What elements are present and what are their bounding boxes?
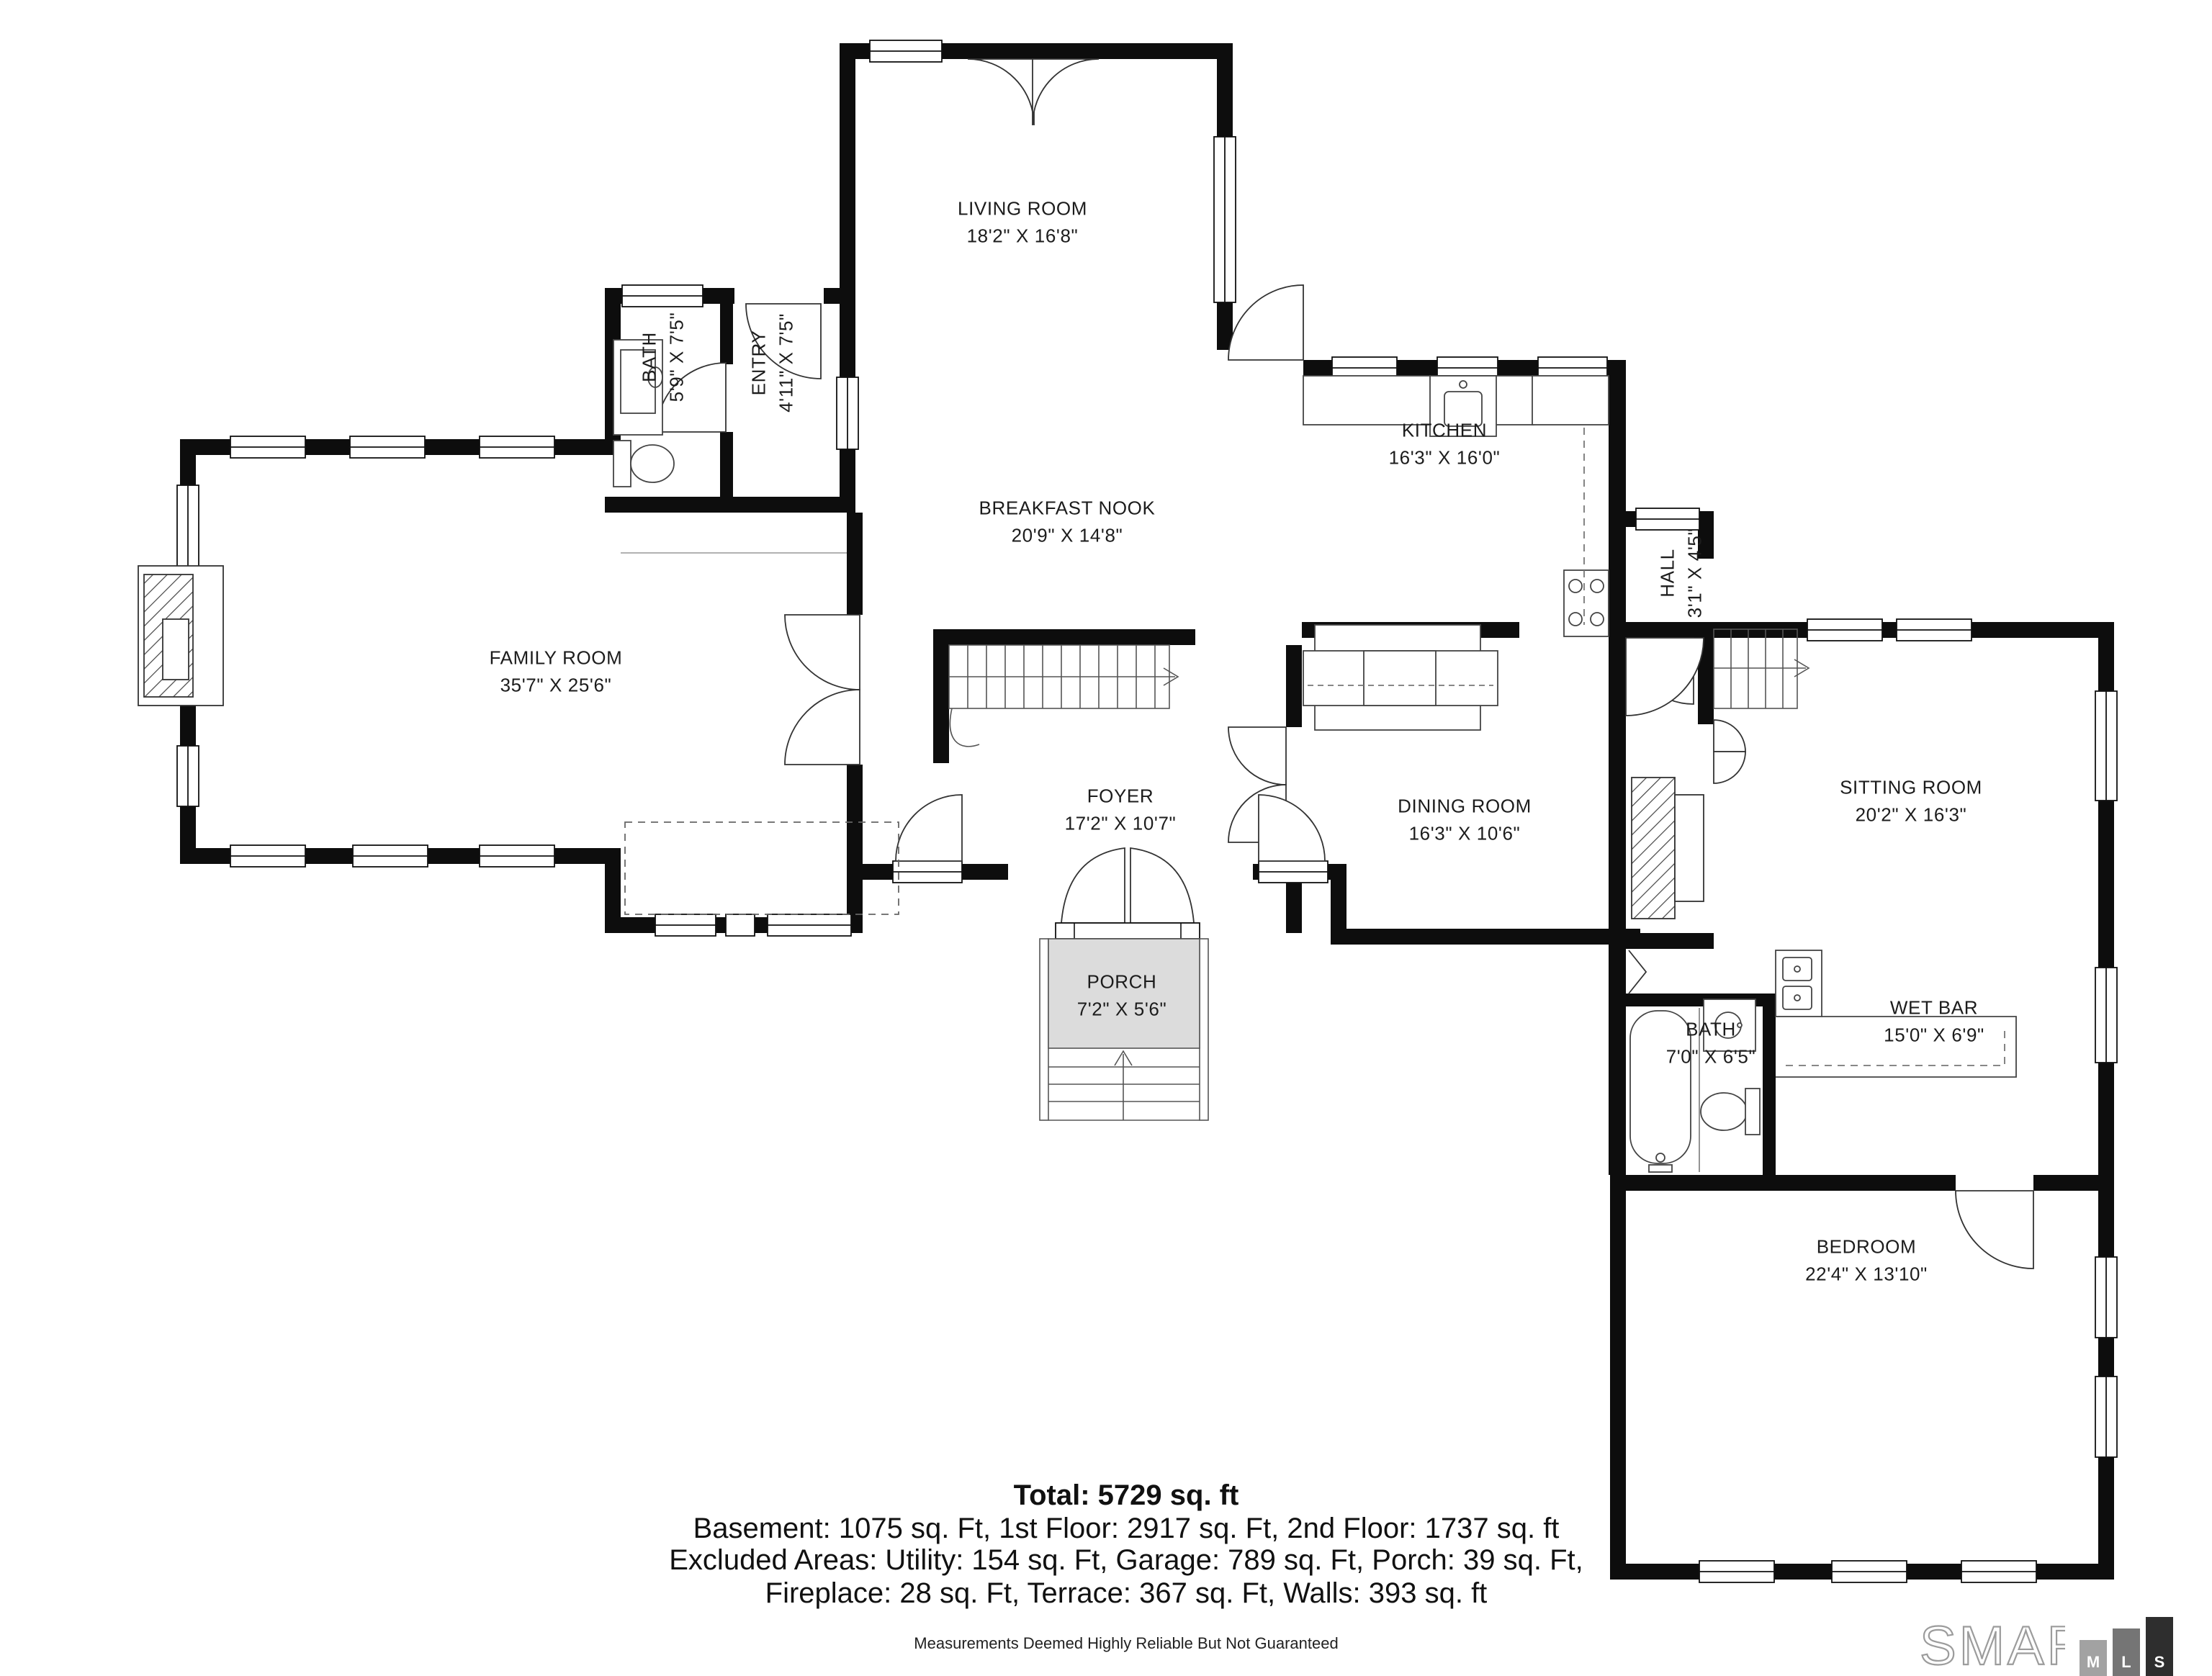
excluded-areas-2: Fireplace: 28 sq. Ft, Terrace: 367 sq. F…: [20, 1577, 2212, 1610]
room-name: BREAKFAST NOOK: [979, 495, 1156, 523]
porch-steps: [1048, 1051, 1200, 1120]
room-name: BATH: [1666, 1017, 1756, 1044]
room-dims: 7'2" X 5'6": [1077, 996, 1167, 1024]
room-name: ENTRY: [746, 313, 773, 413]
closet-door-bottom: [1714, 752, 1745, 783]
closet-door-top: [1714, 720, 1745, 752]
room-label-bath-2: BATH 7'0" X 6'5": [1666, 1017, 1756, 1071]
bath2-toilet-bowl: [1701, 1093, 1747, 1130]
room-name: DINING ROOM: [1398, 793, 1532, 821]
room-name: LIVING ROOM: [958, 196, 1087, 223]
room-name: WET BAR: [1884, 995, 1984, 1022]
room-dims: 16'3" X 16'0": [1389, 445, 1501, 472]
room-dims: 18'2" X 16'8": [958, 223, 1087, 251]
bath2-toilet-tank: [1745, 1089, 1760, 1135]
room-dims: 15'0" X 6'9": [1884, 1022, 1984, 1050]
room-name: KITCHEN: [1389, 418, 1501, 445]
room-dims: 17'2" X 10'7": [1065, 811, 1177, 838]
room-dims: 22'4" X 13'10": [1805, 1261, 1928, 1289]
room-label-hall: HALL 3'1" X 4'5": [1655, 528, 1709, 618]
bath1-toilet-bowl: [631, 445, 674, 482]
livingroom-french-door-left: [968, 59, 1034, 125]
main-staircase: [949, 645, 1178, 747]
bedroom-door: [1956, 1191, 2033, 1269]
room-name: FOYER: [1065, 783, 1177, 811]
room-dims: 5'9" X 7'5": [664, 312, 691, 402]
room-label-entry: ENTRY 4'11" X 7'5": [746, 313, 800, 413]
room-dims: 35'7" X 25'6": [490, 672, 623, 700]
floor-plan-page: LIVING ROOM 18'2" X 16'8" BATH 5'9" X 7'…: [0, 0, 2212, 1659]
room-label-dining-room: DINING ROOM 16'3" X 10'6": [1398, 793, 1532, 847]
room-label-bedroom: BEDROOM 22'4" X 13'10": [1805, 1234, 1928, 1288]
room-label-porch: PORCH 7'2" X 5'6": [1077, 969, 1167, 1023]
excluded-areas: Excluded Areas: Utility: 154 sq. Ft, Gar…: [20, 1545, 2212, 1577]
smartmls-logo: SMART M L S: [1918, 1610, 2173, 1676]
disclaimer-text: Measurements Deemed Highly Reliable But …: [20, 1636, 2212, 1653]
bath2-bifold-door: [1629, 950, 1646, 994]
room-dims: 4'11" X 7'5": [773, 313, 801, 413]
room-label-family-room: FAMILY ROOM 35'7" X 25'6": [490, 645, 623, 699]
nook-french-door-bottom: [785, 690, 860, 765]
dining-room-fireplace: [1632, 778, 1704, 919]
mls-blocks: M L S: [2074, 1617, 2173, 1676]
area-summary: Total: 5729 sq. ft Basement: 1075 sq. Ft…: [20, 1480, 2212, 1610]
room-dims: 7'0" X 6'5": [1666, 1044, 1756, 1071]
smart-wordmark: SMART: [1918, 1610, 2065, 1676]
foyer-front-arc-left: [896, 795, 962, 861]
room-name: HALL: [1655, 528, 1682, 618]
total-area: Total: 5729 sq. ft: [20, 1480, 2212, 1513]
room-label-wet-bar: WET BAR 15'0" X 6'9": [1884, 995, 1984, 1049]
front-door-leaf-left: [1061, 848, 1125, 923]
mls-block-m: M: [2080, 1640, 2107, 1676]
room-name: FAMILY ROOM: [490, 645, 623, 672]
livingroom-french-door-right: [1033, 59, 1099, 125]
svg-text:SMART: SMART: [1920, 1616, 2065, 1676]
room-label-kitchen: KITCHEN 16'3" X 16'0": [1389, 418, 1501, 472]
room-label-sitting-room: SITTING ROOM 20'2" X 16'3": [1840, 775, 1982, 829]
room-name: BATH: [637, 312, 664, 402]
room-dims: 16'3" X 10'6": [1398, 821, 1532, 848]
room-label-living-room: LIVING ROOM 18'2" X 16'8": [958, 196, 1087, 250]
family-room-fireplace: [138, 566, 223, 706]
foyer-front-arc-right: [1259, 795, 1325, 861]
kitchen-stove: [1564, 570, 1609, 636]
mls-block-l: L: [2113, 1628, 2140, 1676]
room-name: PORCH: [1077, 969, 1167, 996]
room-label-bath-1: BATH 5'9" X 7'5": [637, 312, 691, 402]
mls-block-s: S: [2146, 1617, 2173, 1676]
foyer-dining-door-top: [1228, 727, 1286, 785]
room-dims: 20'9" X 14'8": [979, 523, 1156, 550]
bath1-toilet-tank: [613, 441, 631, 487]
room-dims: 3'1" X 4'5": [1682, 528, 1709, 618]
room-name: BEDROOM: [1805, 1234, 1928, 1261]
dining-buffet: [1303, 651, 1498, 706]
nook-french-door-top: [785, 615, 860, 690]
upper-staircase: [1714, 629, 1809, 708]
room-name: SITTING ROOM: [1840, 775, 1982, 802]
floor-areas: Basement: 1075 sq. Ft, 1st Floor: 2917 s…: [20, 1513, 2212, 1545]
room-label-foyer: FOYER 17'2" X 10'7": [1065, 783, 1177, 837]
room-dims: 20'2" X 16'3": [1840, 802, 1982, 829]
room-label-breakfast-nook: BREAKFAST NOOK 20'9" X 14'8": [979, 495, 1156, 549]
front-door-leaf-right: [1130, 848, 1194, 923]
livingroom-kitchen-door: [1228, 285, 1303, 360]
